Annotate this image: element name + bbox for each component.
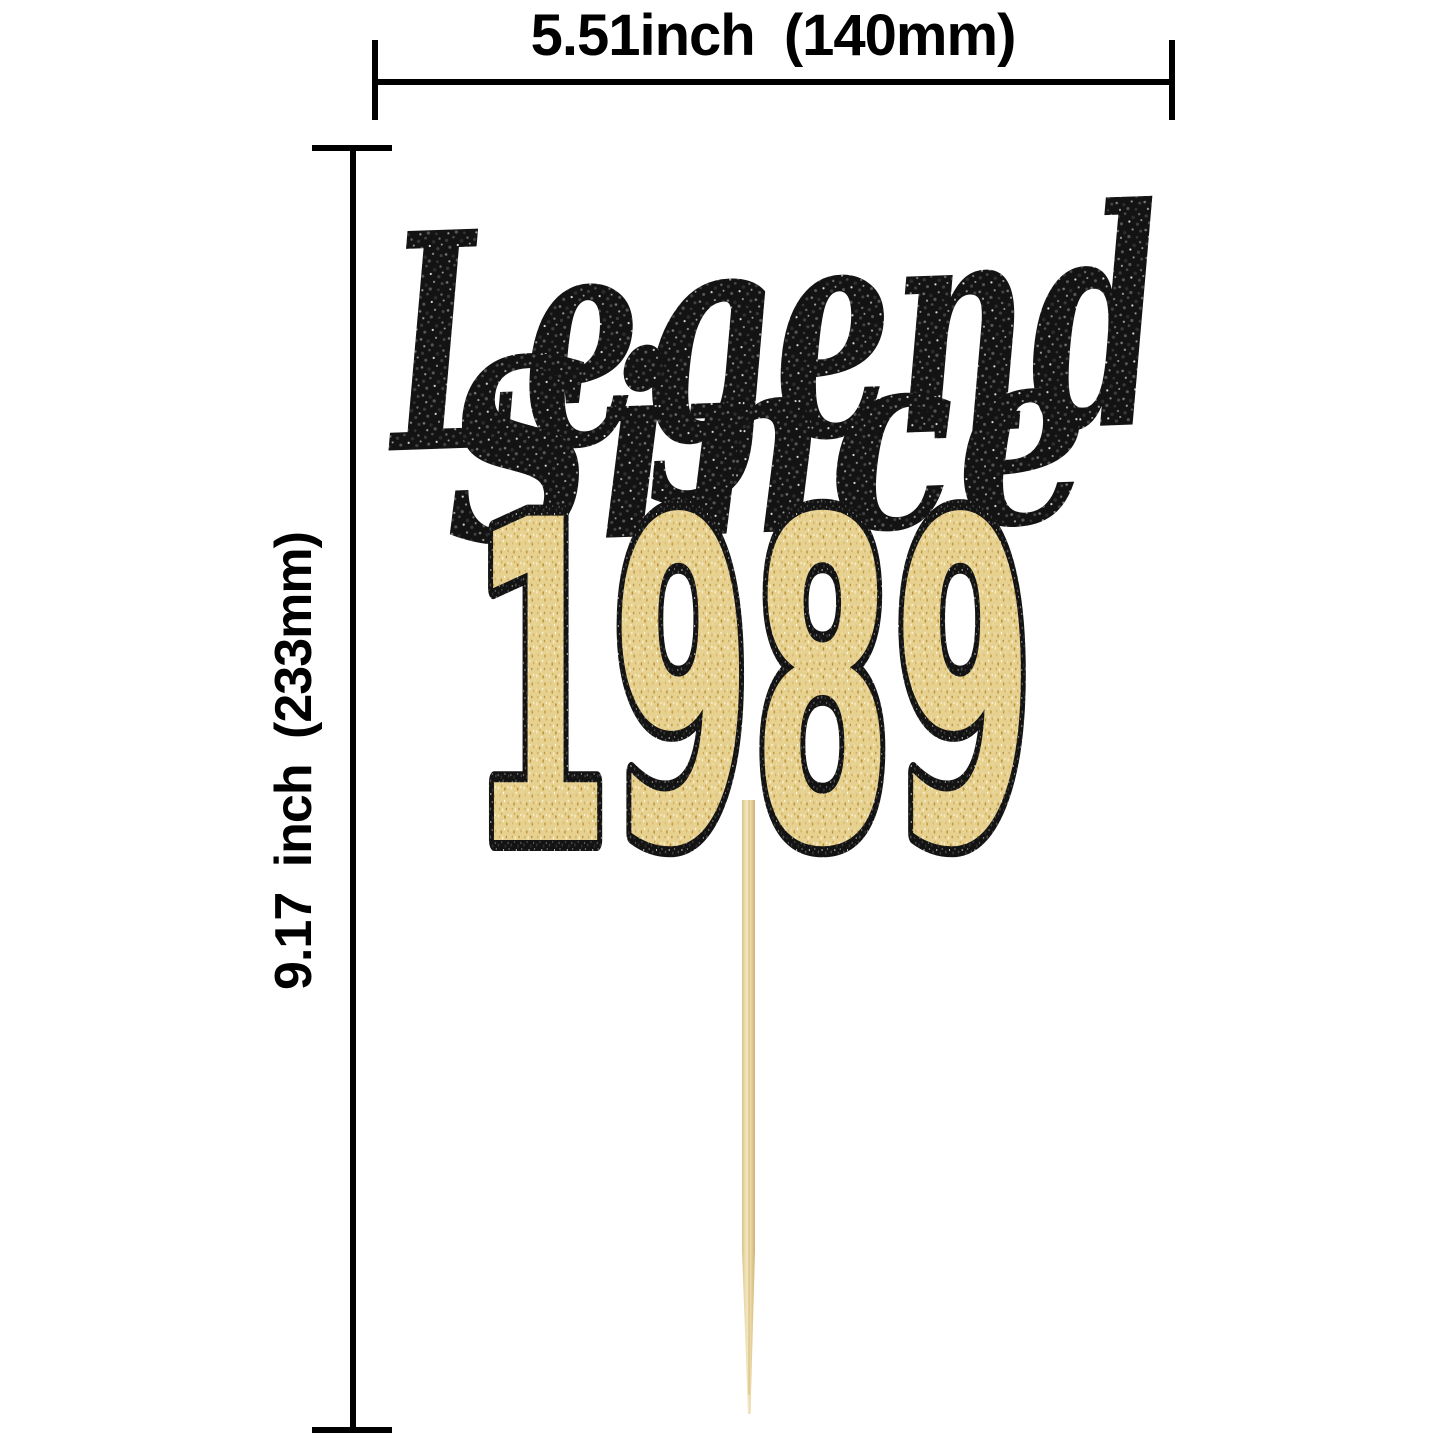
cake-topper-graphic: Legend Since 1989: [0, 0, 1445, 1445]
topper-year-1989: 1989: [470, 427, 1034, 946]
product-image: 5.51inch (140mm) 9.17 inch (233mm): [0, 0, 1445, 1445]
